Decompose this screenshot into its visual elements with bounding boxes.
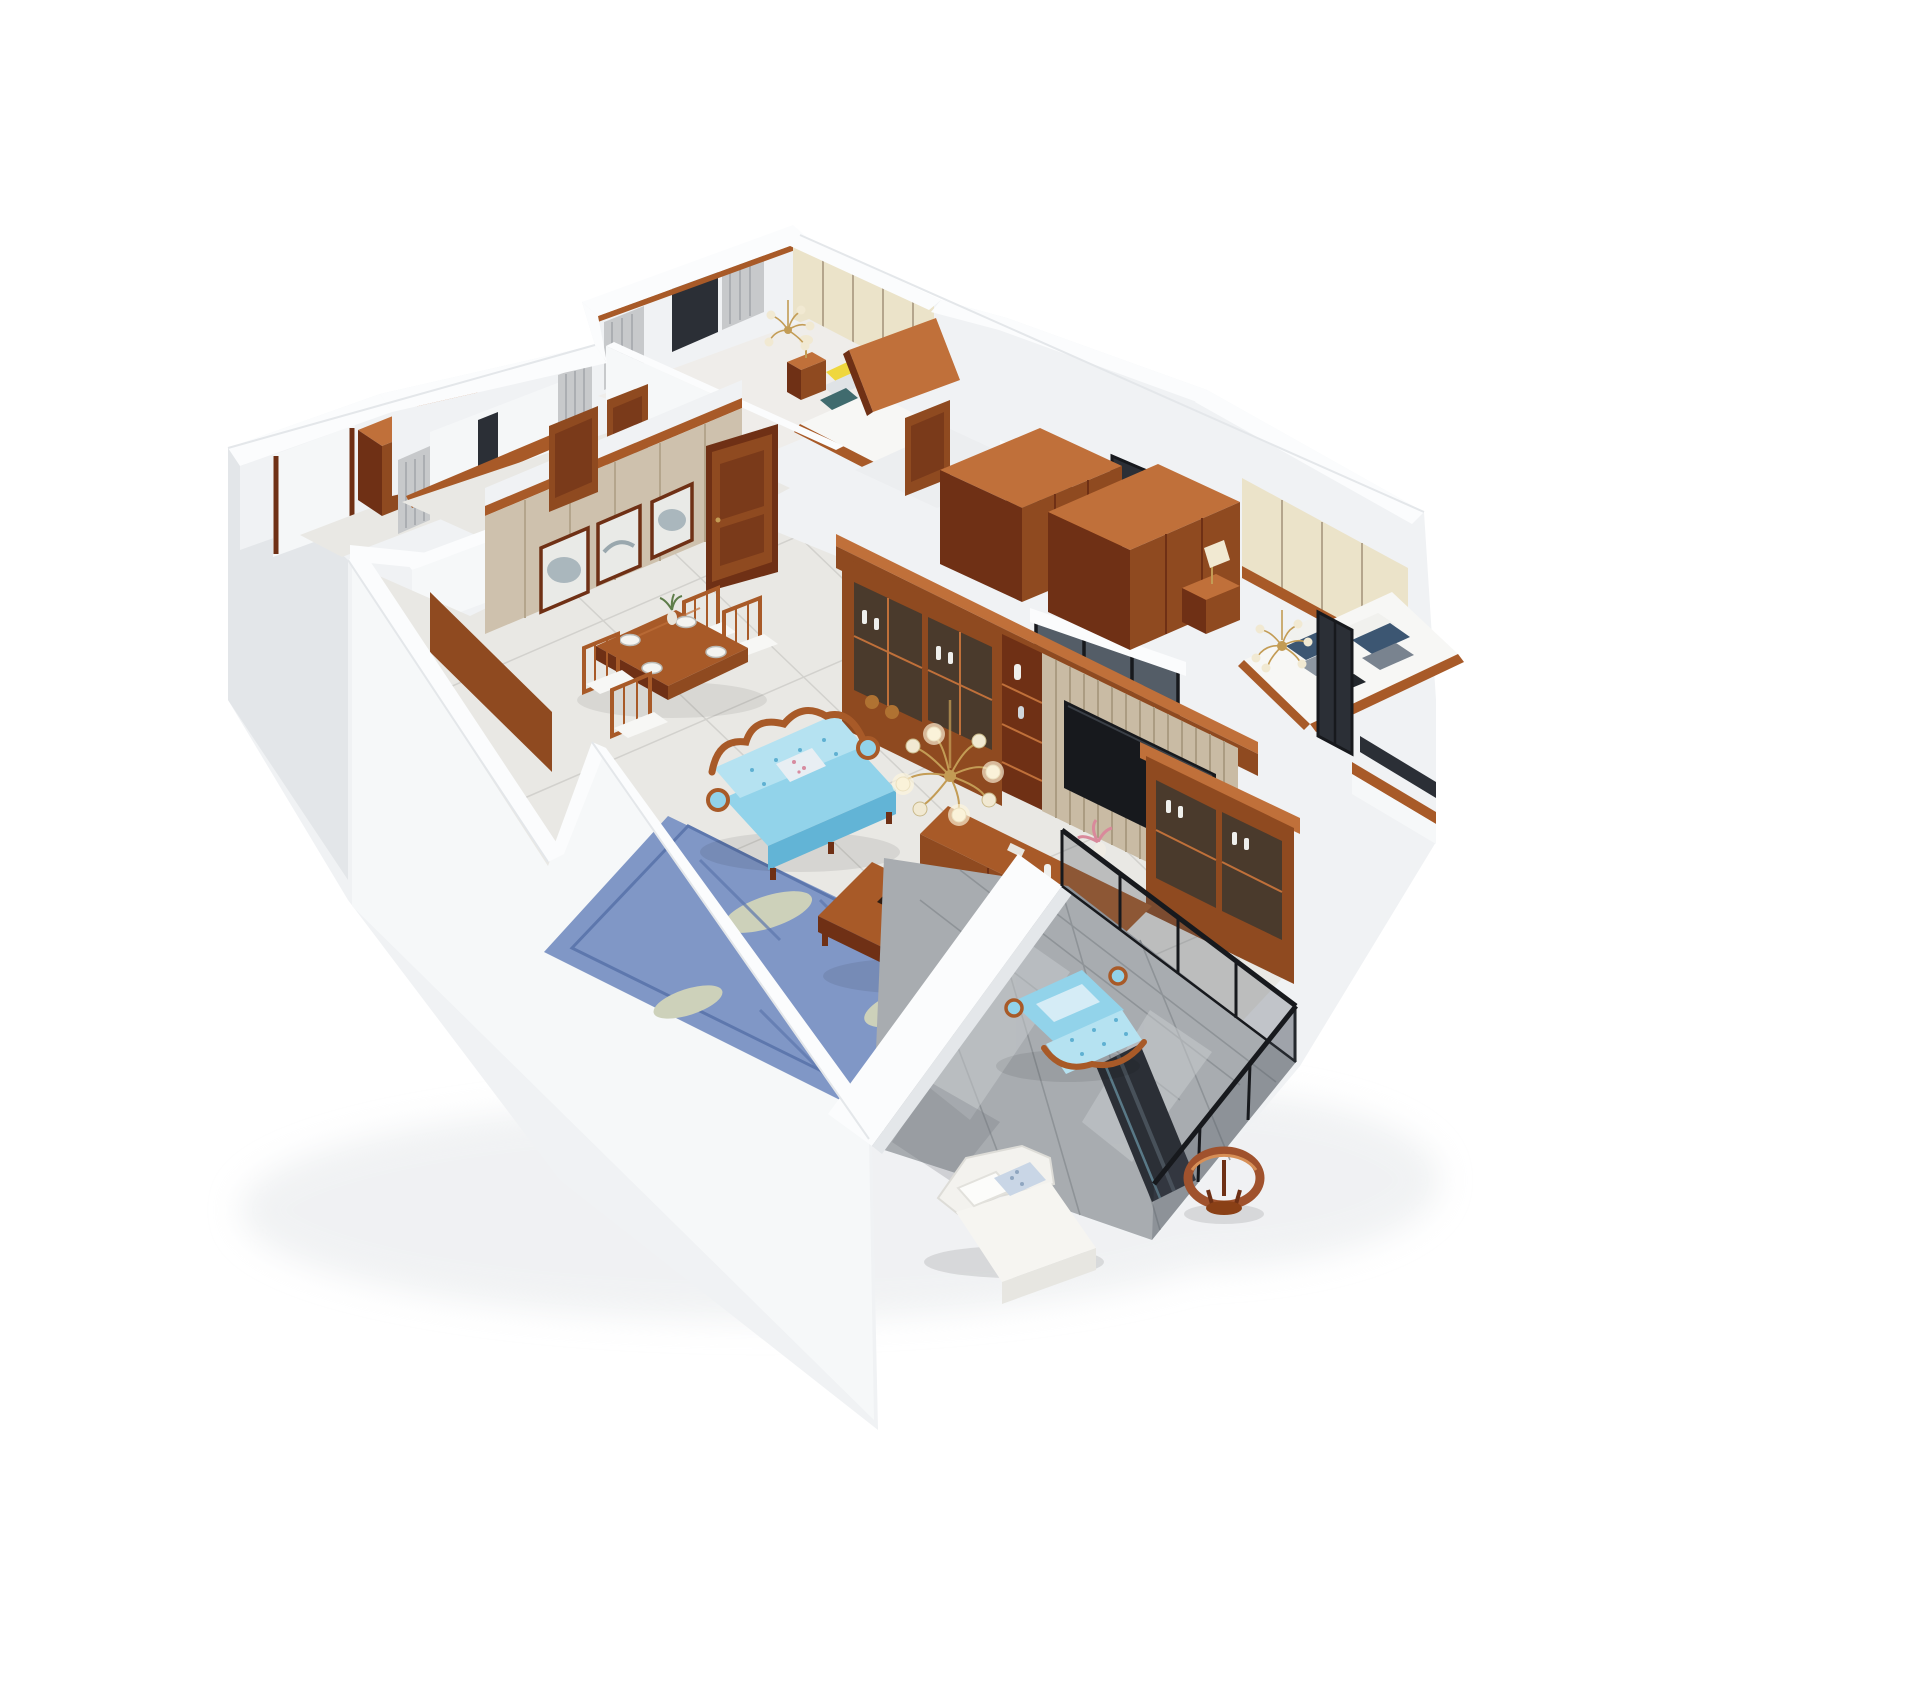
- armchair-arm-right: [1110, 968, 1126, 984]
- hall-door: [706, 424, 778, 592]
- floorplan-stage: [0, 0, 1920, 1688]
- sofa-arm-left: [708, 790, 728, 810]
- tv-mid-shelves: [1002, 634, 1042, 810]
- sofa-arm-right: [858, 738, 878, 758]
- floorplan-render: [0, 0, 1920, 1688]
- east-bay-window: [1318, 612, 1352, 754]
- armchair-arm-left: [1006, 1000, 1022, 1016]
